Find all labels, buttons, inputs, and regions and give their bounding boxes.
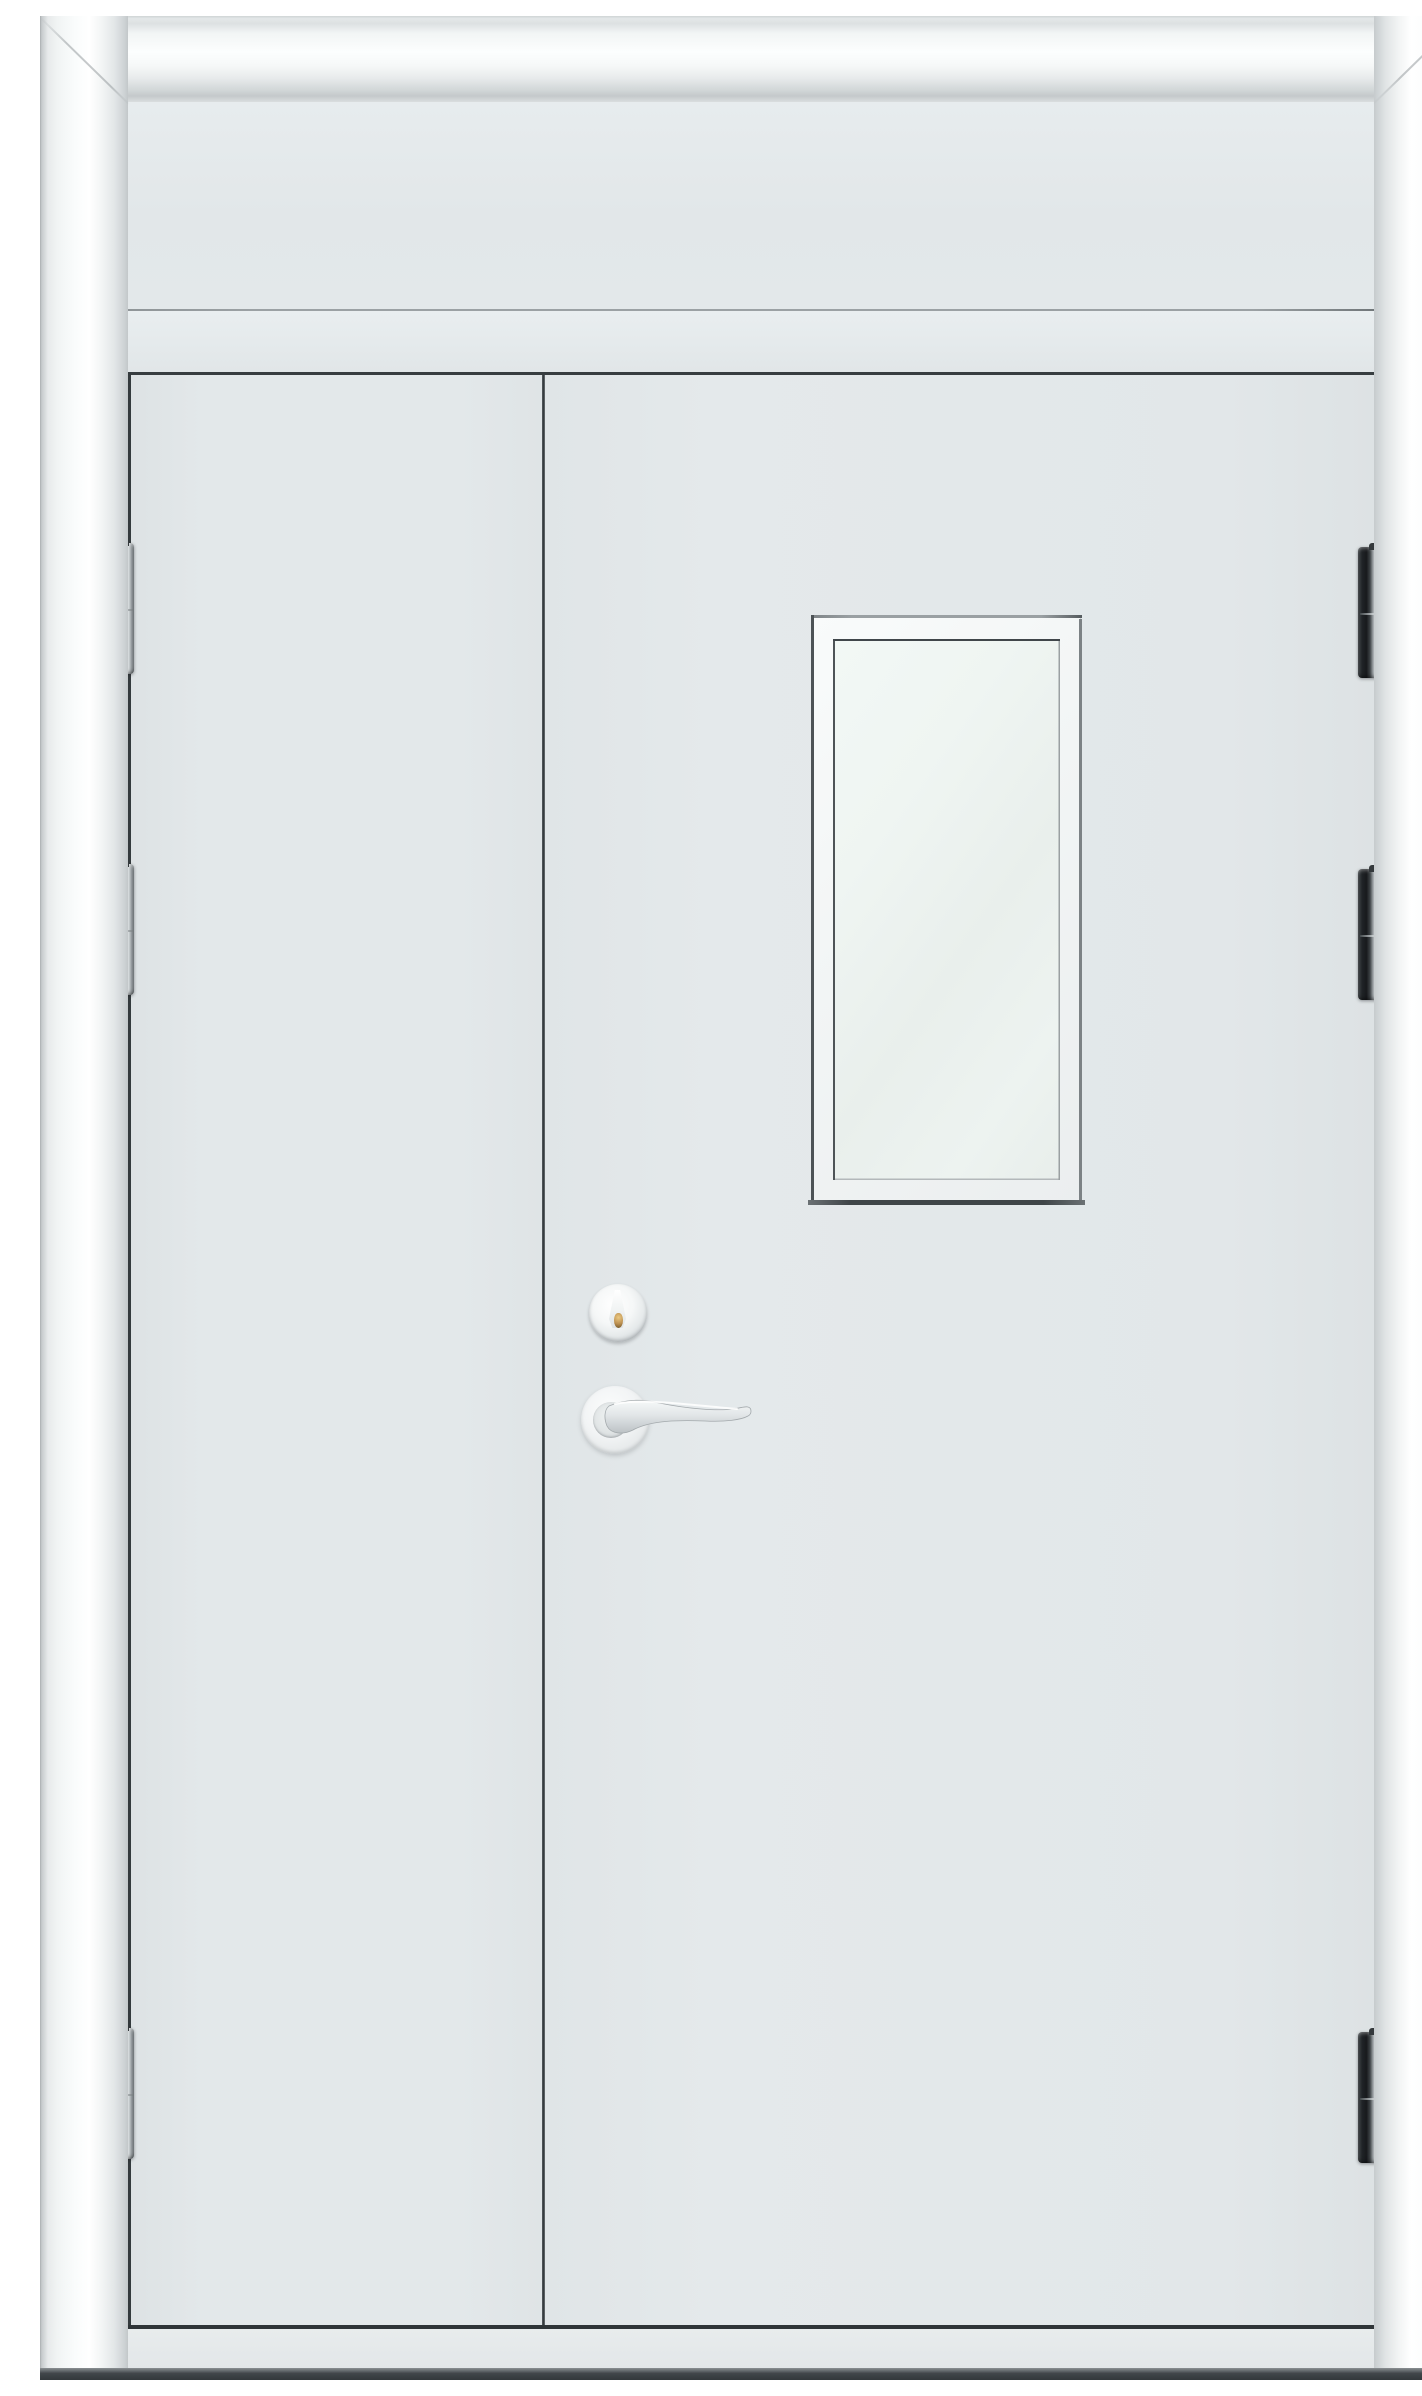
window-edge-bottom <box>808 1200 1085 1205</box>
window-edge-top <box>811 615 1082 618</box>
door-photo: White unequal double steel door with mou… <box>40 16 1422 2380</box>
vision-window-glass <box>833 639 1060 1180</box>
window-edge-left <box>811 615 814 1203</box>
frame-jamb-right <box>1374 16 1422 2380</box>
window-edge-right <box>1079 619 1082 1203</box>
transom-seam-line <box>128 309 1378 311</box>
door-bottom-gap-line <box>128 2325 1378 2329</box>
meeting-stile-line <box>542 375 545 2326</box>
frame-head <box>40 16 1422 102</box>
frame-jamb-left <box>40 16 128 2380</box>
transom-rail <box>128 311 1378 372</box>
keyhole <box>614 1313 623 1328</box>
transom-panel <box>128 100 1378 310</box>
lever-handle <box>585 1388 755 1452</box>
door-leaf-left <box>129 375 542 2325</box>
floor-shadow-line <box>40 2368 1422 2380</box>
door-top-gap-line <box>128 372 1378 375</box>
